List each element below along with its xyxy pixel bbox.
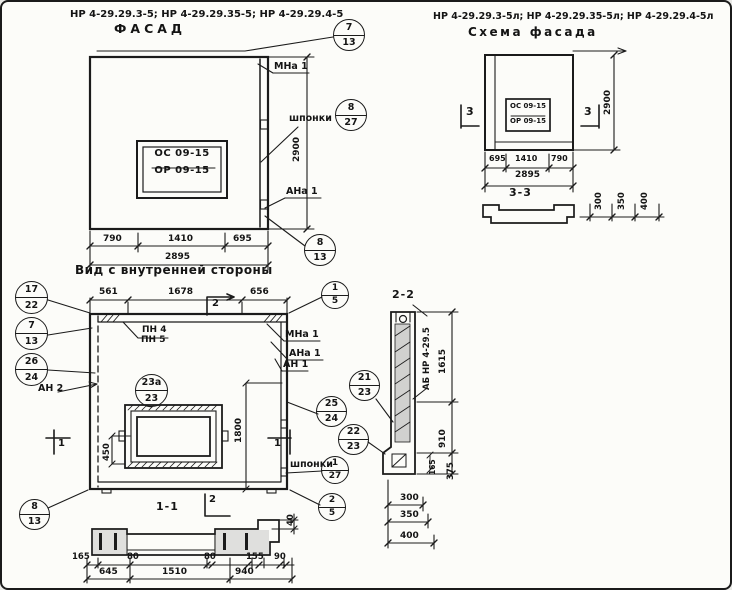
scheme-title: Схема фасада <box>468 26 598 38</box>
callout-pos: 26 <box>16 354 47 369</box>
facade-plaque-line2: ОР 09-15 <box>143 166 221 176</box>
inner-label-pn5: ПН 5 <box>141 336 165 345</box>
callout-sheet: 23 <box>339 439 368 454</box>
callout-sheet: 13 <box>305 250 335 266</box>
inner-callout-17-22: 17 22 <box>15 281 48 314</box>
inner-section-marker-2-top: 2 <box>212 299 219 309</box>
scheme-plaque-line2: ОР 09-15 <box>506 118 550 125</box>
facade-dim-2895: 2895 <box>165 253 190 262</box>
callout-sheet: 24 <box>317 411 346 426</box>
callout-pos: 8 <box>336 100 366 115</box>
callout-sheet: 27 <box>322 470 348 484</box>
callout-pos: 25 <box>317 397 346 411</box>
section-3-3-title: 3-3 <box>509 187 532 198</box>
section-1-1-dim-1510: 1510 <box>162 568 187 577</box>
callout-sheet: 24 <box>16 369 47 385</box>
callout-pos: 1 <box>322 282 348 295</box>
section-1-1-title: 1-1 <box>156 501 179 512</box>
section-1-1-dim-940: 940 <box>235 568 254 577</box>
inner-callout-22-23: 22 23 <box>338 424 369 455</box>
section-2-2-linework <box>383 305 458 549</box>
inner-callout-26-24: 26 24 <box>15 353 48 386</box>
scheme-section-marker-right: 3 <box>584 106 592 117</box>
facade-callout-7-13: 7 13 <box>333 19 365 51</box>
callout-sheet: 27 <box>336 115 366 131</box>
inner-label-mna1: МНа 1 <box>285 330 319 340</box>
facade-label-mna1: МНа 1 <box>274 62 308 72</box>
facade-plaque-line1: ОС 09-15 <box>143 149 221 159</box>
section-2-2-dim-400: 400 <box>400 532 419 541</box>
section-1-1-dim-80b: 80 <box>204 553 216 562</box>
section-2-2-dim-165: 165 <box>429 459 437 475</box>
section-2-2-dim-1615: 1615 <box>439 349 448 374</box>
callout-sheet: 5 <box>322 295 348 309</box>
section-2-2-dim-350: 350 <box>400 511 419 520</box>
scheme-dim-790: 790 <box>551 155 568 163</box>
section-2-2-part-label: АБ НР 4-29.5 <box>423 327 432 390</box>
callout-sheet: 5 <box>319 507 345 521</box>
scheme-code-title: НР 4-29.29.3-5л; НР 4-29.29.35-5л; НР 4-… <box>433 12 713 22</box>
section-2-2-title: 2-2 <box>392 289 415 300</box>
callout-sheet: 13 <box>334 35 364 51</box>
section-2-2-dim-375: 375 <box>447 462 456 480</box>
section-1-1-dim-165: 165 <box>72 553 90 562</box>
callout-pos: 17 <box>16 282 47 297</box>
inner-dim-656: 656 <box>250 288 269 297</box>
callout-sheet: 13 <box>20 514 49 529</box>
scheme-dim-2900: 2900 <box>604 90 613 115</box>
inner-dim-450: 450 <box>103 443 112 461</box>
facade-label-shponki: шпонки <box>289 114 332 124</box>
inner-dim-1678: 1678 <box>168 288 193 297</box>
inner-callout-2-5: 2 5 <box>318 493 346 521</box>
section-1-1-dim-40: 40 <box>287 514 296 526</box>
inner-callout-21-23: 21 23 <box>349 370 380 401</box>
facade-code-title: НР 4-29.29.3-5; НР 4-29.29.35-5; НР 4-29… <box>70 10 343 20</box>
callout-sheet: 23 <box>136 390 167 406</box>
scheme-dim-2895: 2895 <box>515 171 540 180</box>
callout-pos: 21 <box>350 371 379 385</box>
scheme-plaque-line1: ОС 09-15 <box>506 103 550 110</box>
scheme-linework <box>461 48 664 223</box>
facade-title: ФАСАД <box>114 23 186 36</box>
callout-pos: 2 <box>319 494 345 507</box>
callout-pos: 22 <box>339 425 368 439</box>
callout-pos: 8 <box>20 500 49 514</box>
section-2-2-dim-910: 910 <box>439 429 448 448</box>
inner-label-an1: АН 1 <box>283 360 308 370</box>
facade-dim-790: 790 <box>103 235 122 244</box>
inner-label-an2: АН 2 <box>38 384 63 394</box>
section-3-3-dim-300: 300 <box>595 192 604 210</box>
section-1-1-marker-2: 2 <box>209 495 216 505</box>
facade-dim-695: 695 <box>233 235 252 244</box>
inner-callout-25-24: 25 24 <box>316 396 347 427</box>
facade-label-ana1: АНа 1 <box>286 187 318 197</box>
inner-callout-8-13: 8 13 <box>19 499 50 530</box>
inner-dim-1800: 1800 <box>235 418 244 443</box>
inner-callout-1-5: 1 5 <box>321 281 349 309</box>
inner-dim-561: 561 <box>99 288 118 297</box>
facade-callout-8-13: 8 13 <box>304 234 336 266</box>
facade-dim-2900: 2900 <box>293 137 302 162</box>
section-1-1-dim-90: 90 <box>274 553 286 562</box>
section-1-1-dim-80a: 80 <box>127 553 139 562</box>
inner-callout-1-27: 1 27 <box>321 456 349 484</box>
section-1-1-dim-155: 155 <box>246 553 264 562</box>
scheme-dim-695: 695 <box>489 155 506 163</box>
inner-callout-23a-23: 23а 23 <box>135 374 168 407</box>
inner-view-title: Вид с внутренней стороны <box>75 264 273 276</box>
facade-callout-shponki: 8 27 <box>335 99 367 131</box>
callout-pos: 7 <box>16 318 47 333</box>
callout-sheet: 23 <box>350 385 379 400</box>
facade-dim-1410: 1410 <box>168 235 193 244</box>
drawing-sheet: НР 4-29.29.3-5; НР 4-29.29.35-5; НР 4-29… <box>0 0 732 590</box>
section-1-1-dim-645: 645 <box>99 568 118 577</box>
callout-pos: 8 <box>305 235 335 250</box>
inner-label-ana1: АНа 1 <box>289 349 321 359</box>
scheme-section-marker-left: 3 <box>466 106 474 117</box>
callout-sheet: 13 <box>16 333 47 349</box>
callout-pos: 7 <box>334 20 364 35</box>
inner-label-pn4: ПН 4 <box>142 326 166 335</box>
inner-section-marker-1-right: 1 <box>274 439 281 449</box>
callout-pos: 23а <box>136 375 167 390</box>
section-3-3-dim-400: 400 <box>641 192 650 210</box>
scheme-dim-1410: 1410 <box>515 155 537 163</box>
inner-section-marker-1-left: 1 <box>58 439 65 449</box>
callout-sheet: 22 <box>16 297 47 313</box>
section-2-2-dim-300: 300 <box>400 494 419 503</box>
section-3-3-dim-350: 350 <box>618 192 627 210</box>
inner-callout-7-13: 7 13 <box>15 317 48 350</box>
callout-pos: 1 <box>322 457 348 470</box>
